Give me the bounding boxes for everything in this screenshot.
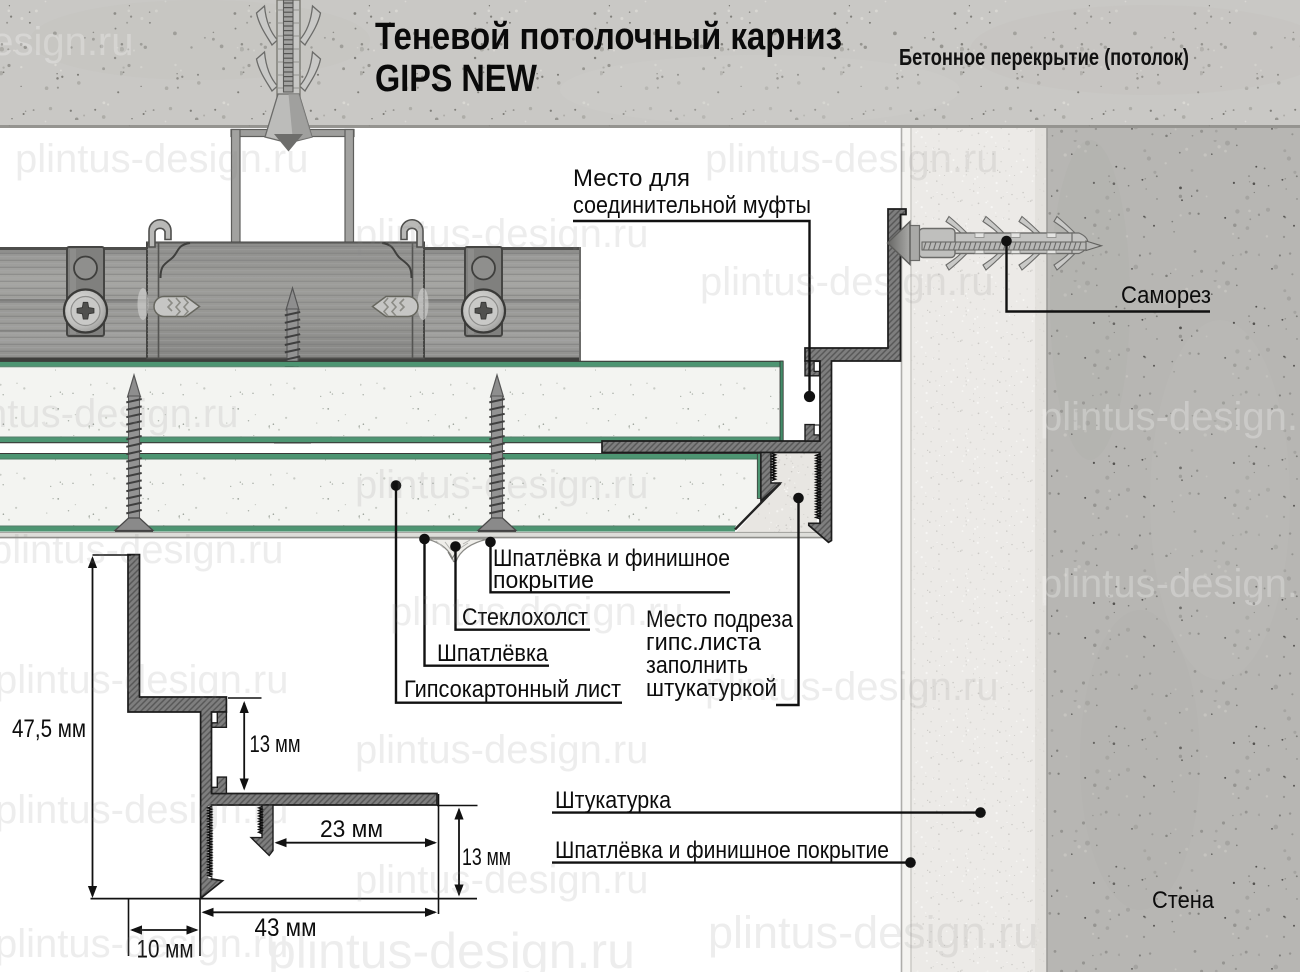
- svg-text:plintus-design.ru: plintus-design.ru: [0, 392, 239, 436]
- svg-text:plintus-design.ru: plintus-design.ru: [355, 212, 649, 256]
- svg-text:plintus-design.ru: plintus-design.ru: [705, 137, 999, 181]
- svg-text:plintus-design.ru: plintus-design.ru: [0, 658, 289, 702]
- svg-text:plintus-design.ru: plintus-design.ru: [1040, 395, 1300, 439]
- svg-text:47,5 мм: 47,5 мм: [12, 715, 86, 743]
- svg-text:plintus-design.ru: plintus-design.ru: [708, 907, 1038, 958]
- svg-text:Стена: Стена: [1152, 887, 1215, 914]
- svg-text:plintus-design.ru: plintus-design.ru: [0, 788, 289, 832]
- svg-text:plintus-design.ru: plintus-design.ru: [355, 463, 649, 507]
- svg-text:Место для: Место для: [573, 165, 690, 192]
- svg-text:plintus-design.ru: plintus-design.ru: [268, 923, 635, 972]
- svg-text:plintus-design.ru: plintus-design.ru: [705, 665, 999, 709]
- svg-text:plintus-design.ru: plintus-design.ru: [355, 728, 649, 772]
- svg-text:Саморез: Саморез: [1121, 282, 1211, 309]
- svg-text:Шпатлёвка: Шпатлёвка: [437, 640, 549, 667]
- svg-text:plintus-design.ru: plintus-design.ru: [15, 137, 309, 181]
- svg-text:23 мм: 23 мм: [320, 816, 383, 843]
- svg-text:Штукатурка: Штукатурка: [555, 787, 672, 814]
- svg-text:Бетонное перекрытие (потолок): Бетонное перекрытие (потолок): [899, 44, 1189, 70]
- svg-text:13 мм: 13 мм: [250, 731, 301, 758]
- svg-text:plintus-design.ru: plintus-design.ru: [700, 260, 994, 304]
- svg-text:plintus-design.ru: plintus-design.ru: [390, 590, 684, 634]
- svg-text:plintus-design.ru: plintus-design.ru: [0, 922, 289, 966]
- svg-text:plintus-design.ru: plintus-design.ru: [355, 858, 649, 902]
- svg-text:plintus-design.ru: plintus-design.ru: [0, 528, 284, 572]
- svg-text:Теневой потолочный карниз: Теневой потолочный карниз: [375, 16, 842, 58]
- svg-text:GIPS NEW: GIPS NEW: [375, 58, 537, 100]
- svg-text:plintus-design.ru: plintus-design.ru: [0, 20, 134, 64]
- svg-text:plintus-design.ru: plintus-design.ru: [1040, 562, 1300, 606]
- svg-text:Гипсокартонный лист: Гипсокартонный лист: [404, 676, 621, 703]
